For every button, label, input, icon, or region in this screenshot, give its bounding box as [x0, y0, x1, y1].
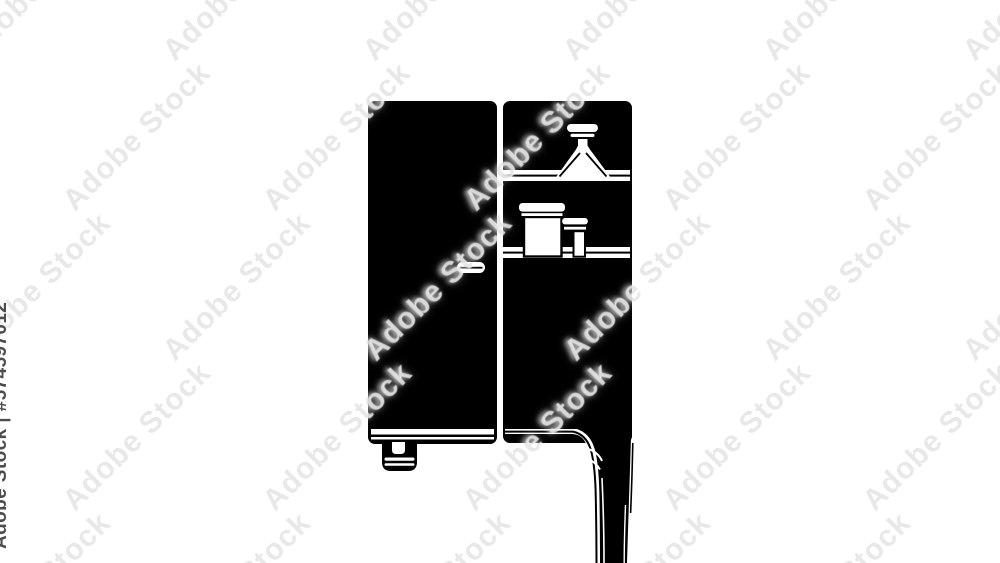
wardrobe-icon [0, 0, 1000, 563]
melting-drip [505, 427, 633, 563]
right-cabinet [503, 101, 632, 443]
box-shelf [503, 247, 630, 258]
stock-image-preview: Adobe StockAdobe StockAdobe StockAdobe S… [0, 0, 1000, 563]
left-foot [382, 442, 417, 471]
left-door [368, 101, 497, 444]
large-box [519, 203, 565, 257]
watermark-id-text: Adobe Stock | #574597012 [0, 302, 12, 549]
door-handle [457, 262, 485, 273]
